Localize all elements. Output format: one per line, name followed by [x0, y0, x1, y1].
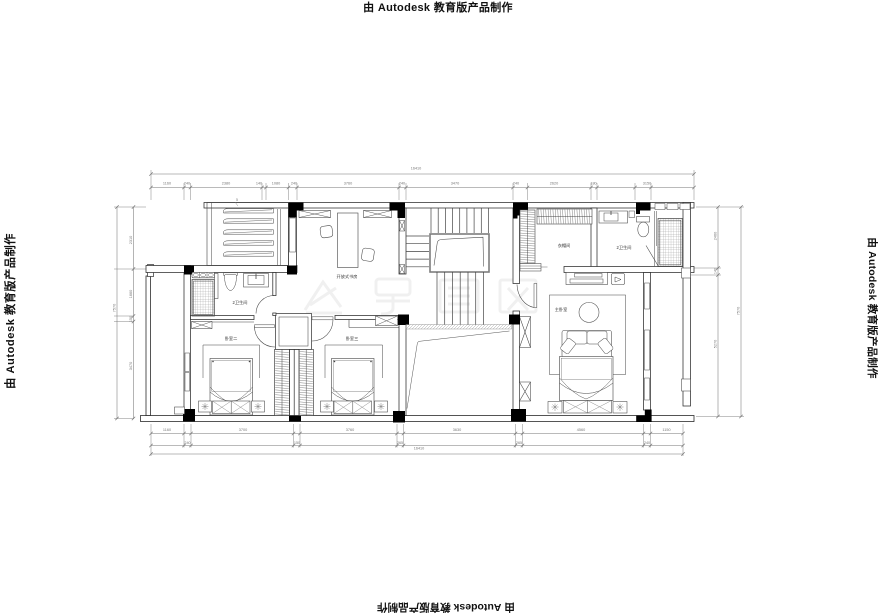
svg-text:4560: 4560: [577, 428, 585, 432]
svg-text:由 Autodesk 教育版产品制作: 由 Autodesk 教育版产品制作: [363, 0, 513, 14]
svg-text:3760: 3760: [346, 428, 354, 432]
svg-text:卧室三: 卧室三: [346, 335, 359, 342]
svg-text:240: 240: [399, 182, 405, 186]
svg-text:140: 140: [256, 182, 262, 186]
svg-text:由 Autodesk 教育版产品制作: 由 Autodesk 教育版产品制作: [866, 237, 878, 379]
svg-text:150: 150: [294, 441, 300, 445]
svg-text:7570: 7570: [113, 304, 117, 312]
svg-text:2卫生间: 2卫生间: [233, 299, 248, 306]
svg-text:主卧室: 主卧室: [555, 306, 568, 313]
svg-text:3760: 3760: [344, 182, 352, 186]
svg-text:由 Autodesk 教育版产品制作: 由 Autodesk 教育版产品制作: [3, 233, 17, 389]
svg-text:265: 265: [397, 441, 403, 445]
svg-text:衣帽间: 衣帽间: [558, 242, 571, 249]
svg-text:3630: 3630: [453, 428, 461, 432]
svg-text:由 Autodesk 教育版产品制作: 由 Autodesk 教育版产品制作: [377, 601, 515, 614]
svg-text:1160: 1160: [163, 428, 171, 432]
svg-text:3470: 3470: [129, 362, 133, 370]
svg-text:240: 240: [184, 182, 190, 186]
svg-text:2卫生间: 2卫生间: [617, 244, 632, 251]
svg-text:5: 5: [236, 198, 238, 202]
svg-text:3700: 3700: [239, 428, 247, 432]
svg-text:7570: 7570: [737, 307, 741, 315]
svg-text:265: 265: [516, 441, 522, 445]
svg-text:3470: 3470: [451, 182, 459, 186]
svg-text:180: 180: [590, 182, 596, 186]
svg-text:1660: 1660: [129, 290, 133, 298]
svg-text:140: 140: [714, 268, 718, 274]
svg-text:1150: 1150: [662, 428, 670, 432]
svg-text:16410: 16410: [414, 446, 425, 450]
svg-text:240: 240: [184, 441, 190, 445]
svg-text:150: 150: [129, 316, 133, 322]
svg-text:卧室二: 卧室二: [225, 335, 238, 342]
svg-text:开放式书房: 开放式书房: [337, 273, 358, 280]
svg-text:5270: 5270: [714, 340, 718, 348]
svg-text:240: 240: [644, 441, 650, 445]
svg-text:16410: 16410: [411, 167, 422, 171]
svg-text:3150: 3150: [643, 182, 651, 186]
svg-text:2310: 2310: [129, 236, 133, 244]
svg-text:240: 240: [513, 182, 519, 186]
svg-text:1160: 1160: [163, 182, 171, 186]
svg-text:1080: 1080: [272, 182, 280, 186]
svg-text:2460: 2460: [714, 232, 718, 240]
svg-text:240: 240: [291, 182, 297, 186]
svg-text:2620: 2620: [550, 182, 558, 186]
svg-text:2380: 2380: [222, 182, 230, 186]
